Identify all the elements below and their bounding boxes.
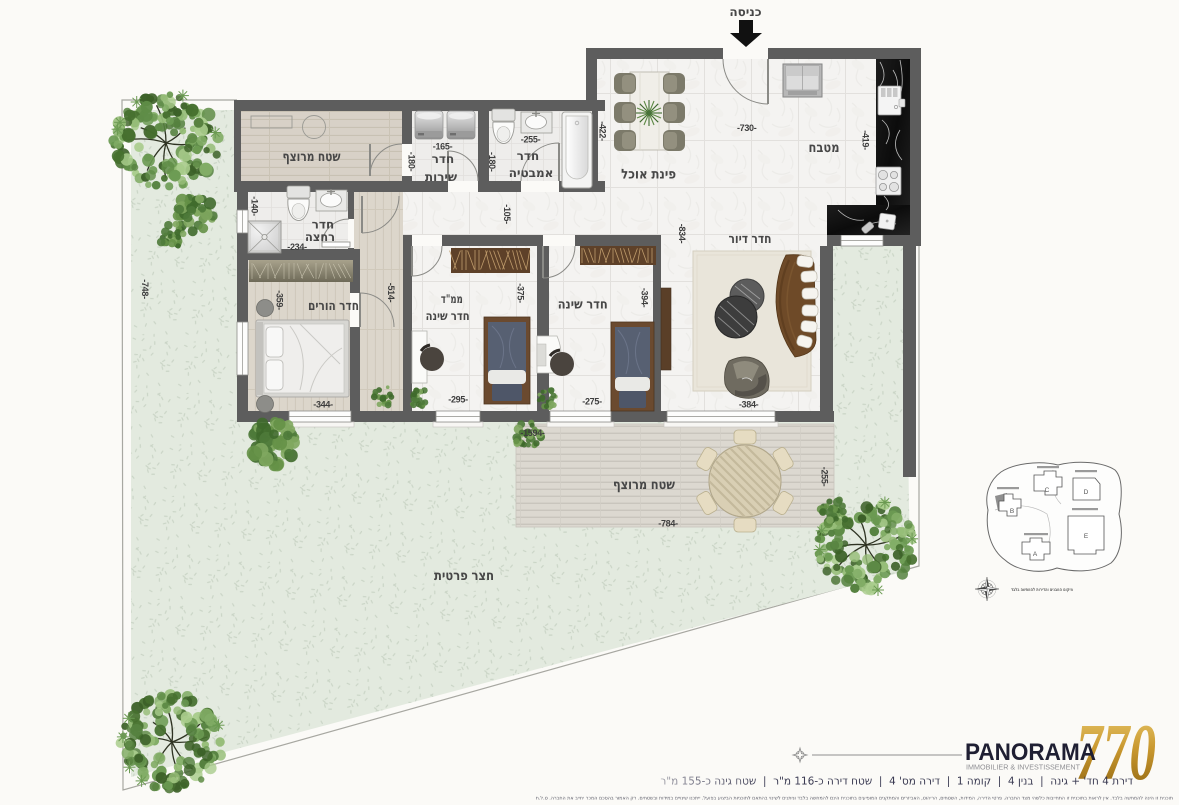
svg-text:-180-: -180- [487,152,497,172]
svg-text:PANORAMA: PANORAMA [965,739,1096,766]
svg-text:-165-: -165- [433,142,453,152]
svg-text:A: A [1033,551,1038,558]
svg-text:-419-: -419- [861,130,871,150]
svg-text:-344-: -344- [313,400,333,410]
svg-text:-1594-: -1594- [520,428,545,438]
svg-text:D: D [1084,489,1089,496]
svg-text:-422-: -422- [598,121,608,141]
svg-text:-255-: -255- [521,135,541,145]
svg-text:-275-: -275- [582,397,602,407]
svg-text:B: B [1010,508,1014,515]
svg-text:-375-: -375- [515,283,525,303]
svg-text:-295-: -295- [448,395,468,405]
svg-text:E: E [1084,533,1089,540]
svg-text:-234-: -234- [287,242,307,252]
svg-text:-384-: -384- [739,400,759,410]
svg-text:-140-: -140- [250,196,260,216]
svg-text:-730-: -730- [737,123,757,133]
svg-text:C: C [1045,487,1050,494]
svg-text:-105-: -105- [502,204,512,224]
svg-text:-748-: -748- [140,279,150,299]
svg-text:-255-: -255- [820,467,830,487]
svg-text:IMMOBILIER & INVESTISSEMENT: IMMOBILIER & INVESTISSEMENT [966,765,1081,772]
svg-text:-514-: -514- [386,283,396,303]
svg-text:-180-: -180- [407,152,417,172]
svg-text:-359-: -359- [275,290,285,310]
svg-text:-784-: -784- [658,519,678,529]
svg-text:-394-: -394- [639,288,649,308]
svg-text:-834-: -834- [677,224,687,244]
